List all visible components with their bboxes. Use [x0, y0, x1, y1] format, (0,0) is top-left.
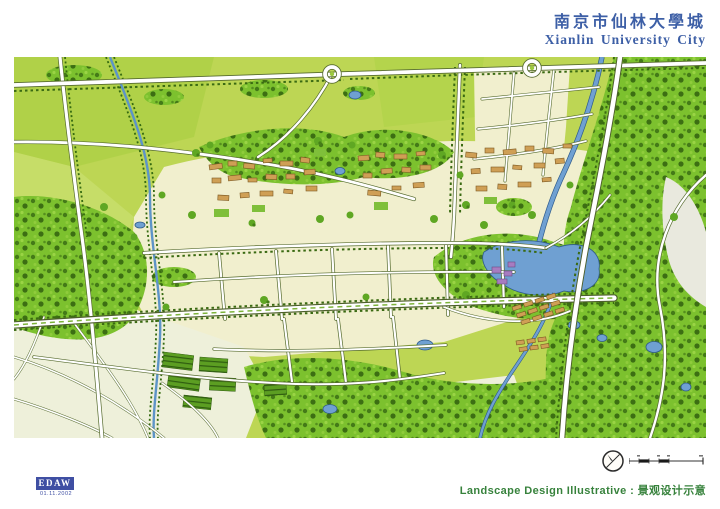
drawing-caption: Landscape Design Illustrative : 景观设计示意: [460, 482, 706, 498]
map-canvas: [14, 57, 706, 438]
firm-logo: EDAW: [36, 477, 74, 490]
page-title-english: Xianlin University City: [545, 32, 706, 48]
roundabout: [325, 67, 339, 81]
stamp-date: 01.11.2002: [36, 491, 76, 497]
graphic-scale-icon: [629, 452, 707, 468]
page-title: 南京市仙林大學城 Xianlin University City: [545, 14, 706, 48]
firm-stamp: EDAW 01.11.2002: [36, 477, 76, 497]
map-illustration: [14, 57, 706, 438]
roundabout: [525, 61, 539, 75]
presentation-board: 南京市仙林大學城 Xianlin University City: [0, 0, 720, 509]
page-title-chinese: 南京市仙林大學城: [545, 14, 706, 32]
north-arrow-icon: [600, 448, 626, 474]
